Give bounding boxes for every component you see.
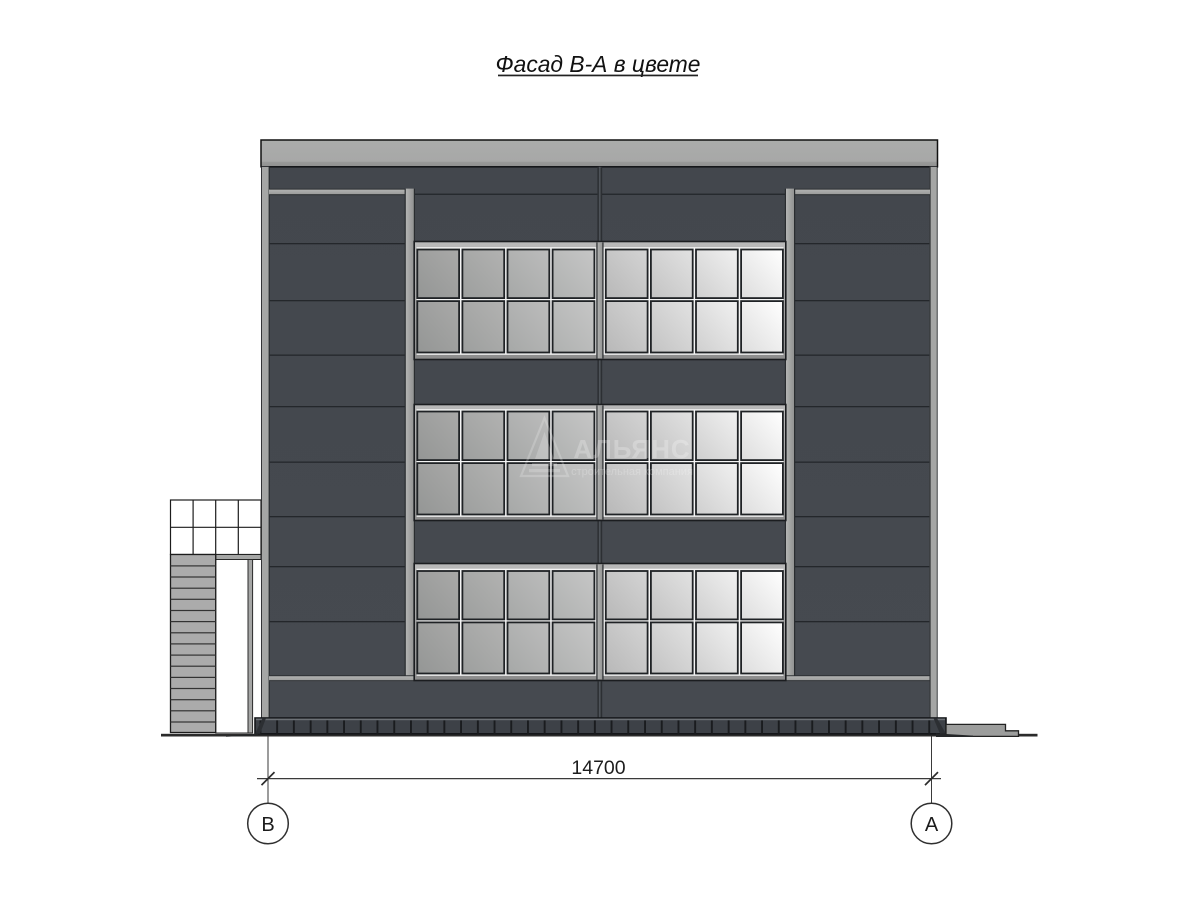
svg-text:АЛЬЯНС: АЛЬЯНС [573, 434, 690, 464]
svg-text:А: А [925, 814, 939, 836]
svg-text:В: В [261, 814, 274, 836]
svg-text:строительная компания: строительная компания [571, 466, 693, 478]
svg-text:14700: 14700 [571, 757, 625, 779]
svg-text:Фасад В-А в цвете: Фасад В-А в цвете [496, 51, 701, 77]
